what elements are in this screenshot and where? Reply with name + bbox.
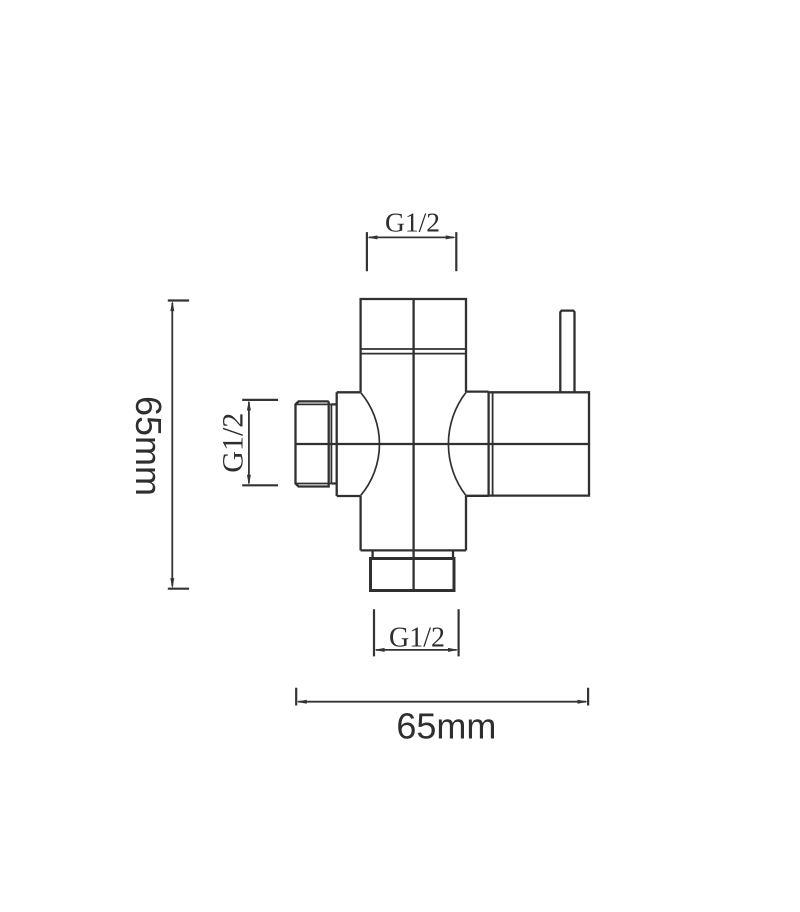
svg-text:G1/2: G1/2: [385, 207, 440, 238]
svg-text:G1/2: G1/2: [217, 413, 250, 473]
svg-text:G1/2: G1/2: [389, 623, 445, 654]
svg-text:65mm: 65mm: [128, 396, 169, 496]
svg-text:65mm: 65mm: [396, 706, 496, 747]
